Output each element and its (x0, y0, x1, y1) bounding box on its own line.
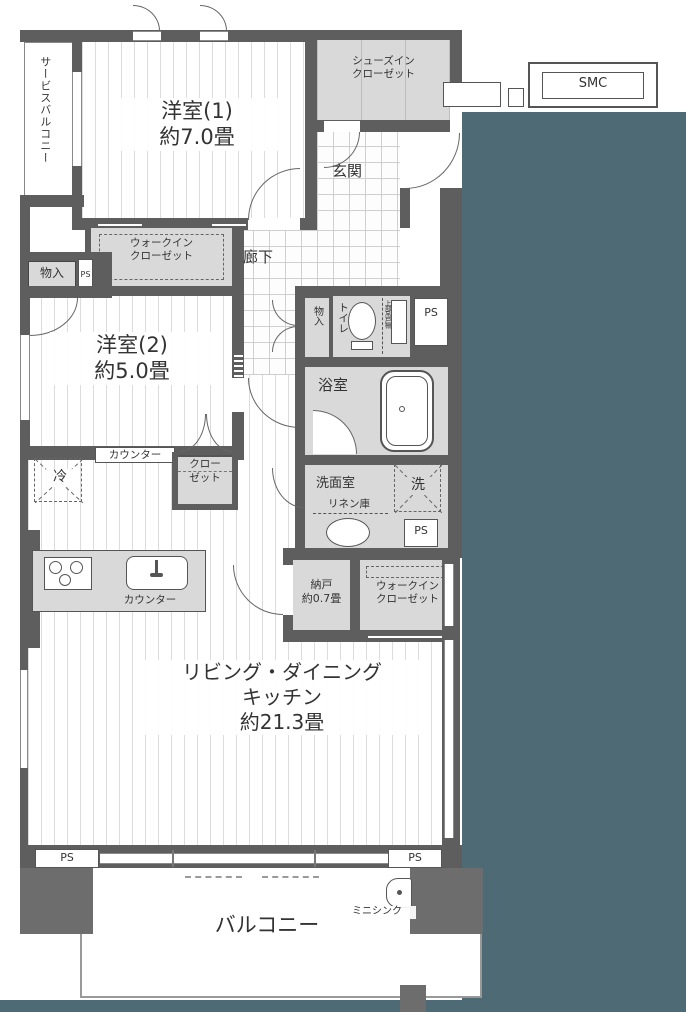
mini-sink-label: ミニシンク (338, 906, 416, 919)
balcony-sliding-window (100, 853, 388, 864)
wic-top-line1: ウォークイン (95, 237, 228, 250)
genkan-label: 玄関 (332, 162, 362, 181)
bottom-pillar (400, 985, 426, 1012)
wic-top-line2: クローゼット (95, 250, 228, 263)
wall (448, 298, 462, 558)
room1-name: 洋室(1) (117, 98, 277, 124)
bathroom-label: 浴室 (318, 376, 348, 395)
ldk-line1: リビング・ダイニング (142, 660, 422, 685)
ps-bottom-right-label: PS (388, 851, 442, 865)
storage-left-label: 物入 (28, 266, 76, 281)
wall (295, 286, 305, 560)
closet-line1: クロー (178, 458, 232, 471)
ps-washroom-label: PS (404, 524, 438, 538)
top-window-gap-1 (133, 31, 161, 41)
stove-burner (70, 561, 83, 574)
mini-sink-drain (397, 890, 402, 895)
stove-burner (59, 574, 71, 586)
bathtub-drain (399, 406, 405, 412)
sic-door-gap (324, 121, 360, 132)
wall (20, 30, 312, 42)
wic-sliding-door (212, 221, 246, 227)
balcony-door-track (262, 876, 319, 878)
room2-window (20, 335, 30, 420)
toilet-tank (391, 300, 407, 344)
toilet-bowl (348, 302, 376, 340)
wall (20, 648, 28, 670)
top-window-gap-2 (200, 31, 228, 41)
entrance-outer-wall (440, 188, 462, 298)
linen-label: リネン庫 (328, 498, 370, 511)
meter-box (443, 82, 501, 107)
washroom-label: 洗面室 (316, 476, 355, 492)
ps-left-label: PS (77, 270, 94, 280)
nando-size: 約0.7畳 (291, 592, 352, 606)
wall (400, 188, 410, 228)
meter-box-small (508, 88, 524, 107)
ldk-right-window-2 (444, 640, 454, 838)
room1-label: 洋室(1) 約7.0畳 (115, 98, 279, 151)
balcony-wall-block-left (20, 868, 93, 934)
stove-burner (49, 561, 62, 574)
balcony-wall-block-right (410, 868, 483, 934)
room2-label: 洋室(2) 約5.0畳 (50, 332, 214, 385)
bathtub-inner (386, 376, 428, 446)
room1-window (72, 72, 82, 166)
wall (72, 42, 82, 72)
hall-storage-label: 物入 (310, 306, 323, 326)
wic-bottom-dashed (366, 566, 449, 578)
sic-line2: クローゼット (317, 68, 450, 81)
smc-label: SMC (542, 76, 644, 92)
wash-basin (326, 518, 370, 547)
toilet-base (351, 341, 373, 350)
balcony-label: バルコニー (185, 912, 349, 938)
ps-bottom-left-label: PS (35, 851, 99, 865)
hallway-label: 廊下 (243, 248, 273, 267)
sic-line1: シューズイン (317, 55, 450, 68)
wall (450, 30, 462, 85)
window-swing-icon (200, 5, 227, 31)
wall (305, 30, 462, 40)
window-center-mark (172, 850, 174, 867)
washer-label: 洗 (404, 477, 432, 495)
wall (400, 122, 410, 132)
ldk-size: 約21.3畳 (142, 710, 422, 735)
upper-cabinet-label: 上部吊戸棚 (383, 300, 391, 328)
wall (20, 768, 28, 845)
wall (300, 218, 317, 230)
closet-label: クロー ゼット (178, 458, 232, 485)
outside-area-bottom (0, 1000, 686, 1012)
wall (295, 357, 460, 367)
counter-upper-label: カウンター (95, 449, 175, 462)
wic-bottom-sliding-door (368, 633, 448, 639)
room2-name: 洋室(2) (52, 332, 212, 358)
wall (283, 548, 460, 560)
service-balcony-label: サービスバルコニー (38, 56, 52, 164)
nando-name: 納戸 (291, 578, 352, 592)
closet-line2: ゼット (178, 471, 232, 485)
kitchen-faucet (155, 560, 158, 574)
nando-label: 納戸 約0.7畳 (291, 578, 352, 606)
fridge-label: 冷 (46, 469, 74, 487)
sic-label: シューズイン クローゼット (317, 55, 450, 81)
ldk-left-window (20, 670, 28, 768)
wall (20, 286, 235, 296)
kitchen-counter-label: カウンター (105, 594, 195, 607)
window-swing-icon (133, 5, 160, 31)
linen-divider (313, 513, 388, 515)
door-frame (234, 352, 243, 378)
outside-area-right (462, 112, 686, 1012)
ldk-label: リビング・ダイニング キッチン 約21.3畳 (140, 660, 424, 735)
wall (232, 452, 238, 508)
wic-sliding-door (98, 221, 142, 227)
balcony-door-track (185, 876, 242, 878)
ps-toilet-label: PS (414, 306, 448, 320)
ldk-line2: キッチン (142, 685, 422, 710)
wic-top-label: ウォークイン クローゼット (95, 237, 228, 263)
entrance-door-swing (405, 133, 460, 189)
wall (305, 30, 317, 228)
room2-size: 約5.0畳 (52, 358, 212, 384)
window-center-mark (314, 850, 316, 867)
kitchen-faucet-base (150, 573, 163, 577)
ldk-right-window-1 (444, 564, 454, 626)
ldk-door-gap (232, 378, 244, 412)
room1-size: 約7.0畳 (117, 124, 277, 150)
wall (20, 455, 28, 540)
floor-plan: SMC ウォークイン クローゼット 物入 PS カウンター クロー ゼット (0, 0, 686, 1012)
